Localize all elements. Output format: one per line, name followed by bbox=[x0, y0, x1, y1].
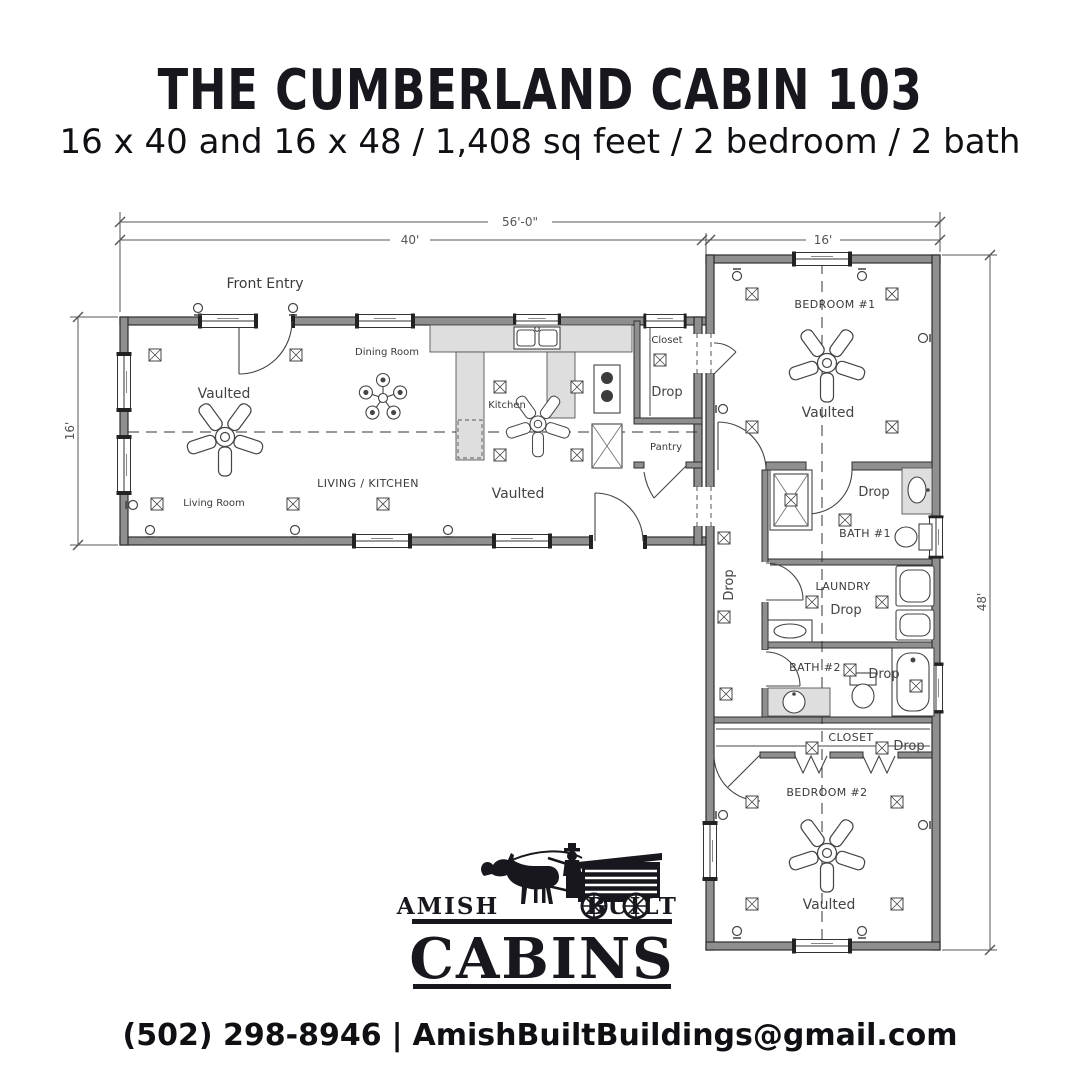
washer-dryer bbox=[896, 566, 934, 640]
label-vaulted-bedroom2: Vaulted bbox=[803, 897, 856, 913]
logo-bar-bottom bbox=[413, 984, 671, 989]
recessed-lights bbox=[149, 288, 922, 910]
label-bedroom2: BEDROOM #2 bbox=[786, 786, 867, 799]
label-living-kitchen: LIVING / KITCHEN bbox=[317, 477, 419, 490]
amish-built-cabins-logo: AMISH BUILT CABINS bbox=[396, 843, 678, 992]
dim-right-wing-width: 16' bbox=[814, 233, 833, 247]
bath2-vanity bbox=[768, 688, 830, 716]
label-closet2: CLOSET bbox=[828, 731, 873, 744]
contact-footer: (502) 298-8946|AmishBuiltBuildings@gmail… bbox=[0, 1018, 1080, 1053]
label-laundry: LAUNDRY bbox=[815, 580, 870, 593]
dim-overall-width: 56'-0" bbox=[502, 215, 538, 229]
label-pantry: Pantry bbox=[650, 442, 682, 453]
dim-right-wing-length: 48' bbox=[975, 593, 989, 612]
label-drop-laundry: Drop bbox=[830, 603, 861, 618]
label-closet-kitchen: Closet bbox=[651, 335, 682, 346]
label-vaulted-bedroom1: Vaulted bbox=[802, 405, 855, 421]
label-front-entry: Front Entry bbox=[226, 276, 303, 292]
dim-left-wing-length: 40' bbox=[401, 233, 420, 247]
label-drop-closet: Drop bbox=[651, 385, 682, 400]
label-bath2: BATH #2 bbox=[789, 661, 841, 674]
label-drop-bath1: Drop bbox=[858, 485, 889, 500]
bath1-vanity bbox=[902, 468, 932, 514]
range bbox=[594, 365, 620, 413]
label-dining-room: Dining Room bbox=[355, 347, 419, 358]
floor-plan: 56'-0" 40' 16' 16' 48' bbox=[0, 0, 1080, 1080]
label-vaulted-kitchen: Vaulted bbox=[492, 486, 545, 502]
label-drop-closet2: Drop bbox=[893, 739, 924, 754]
label-drop-bath2: Drop bbox=[868, 667, 899, 682]
label-drop-hall: Drop bbox=[722, 569, 737, 600]
label-bedroom1: BEDROOM #1 bbox=[794, 298, 875, 311]
phone-number: (502) 298-8946 bbox=[123, 1018, 382, 1053]
label-kitchen: Kitchen bbox=[488, 400, 526, 411]
logo-bar-top bbox=[412, 919, 672, 924]
label-bath1: BATH #1 bbox=[839, 527, 891, 540]
logo-cabins: CABINS bbox=[409, 926, 674, 992]
label-living-room: Living Room bbox=[183, 498, 244, 509]
laundry-sink bbox=[768, 620, 812, 642]
dim-depth: 16' bbox=[63, 422, 77, 441]
footer-separator: | bbox=[382, 1018, 413, 1053]
kitchen-counters bbox=[430, 325, 632, 468]
label-vaulted-living: Vaulted bbox=[198, 386, 251, 402]
refrigerator bbox=[592, 424, 622, 468]
logo-built: BUILT bbox=[586, 893, 678, 920]
email-address: AmishBuiltBuildings@gmail.com bbox=[413, 1018, 958, 1053]
bath1-toilet bbox=[895, 524, 932, 550]
logo-amish: AMISH bbox=[396, 893, 499, 920]
kitchen-sink bbox=[514, 327, 560, 349]
flyer-page: THE CUMBERLAND CABIN 103 16 x 40 and 16 … bbox=[0, 0, 1080, 1080]
